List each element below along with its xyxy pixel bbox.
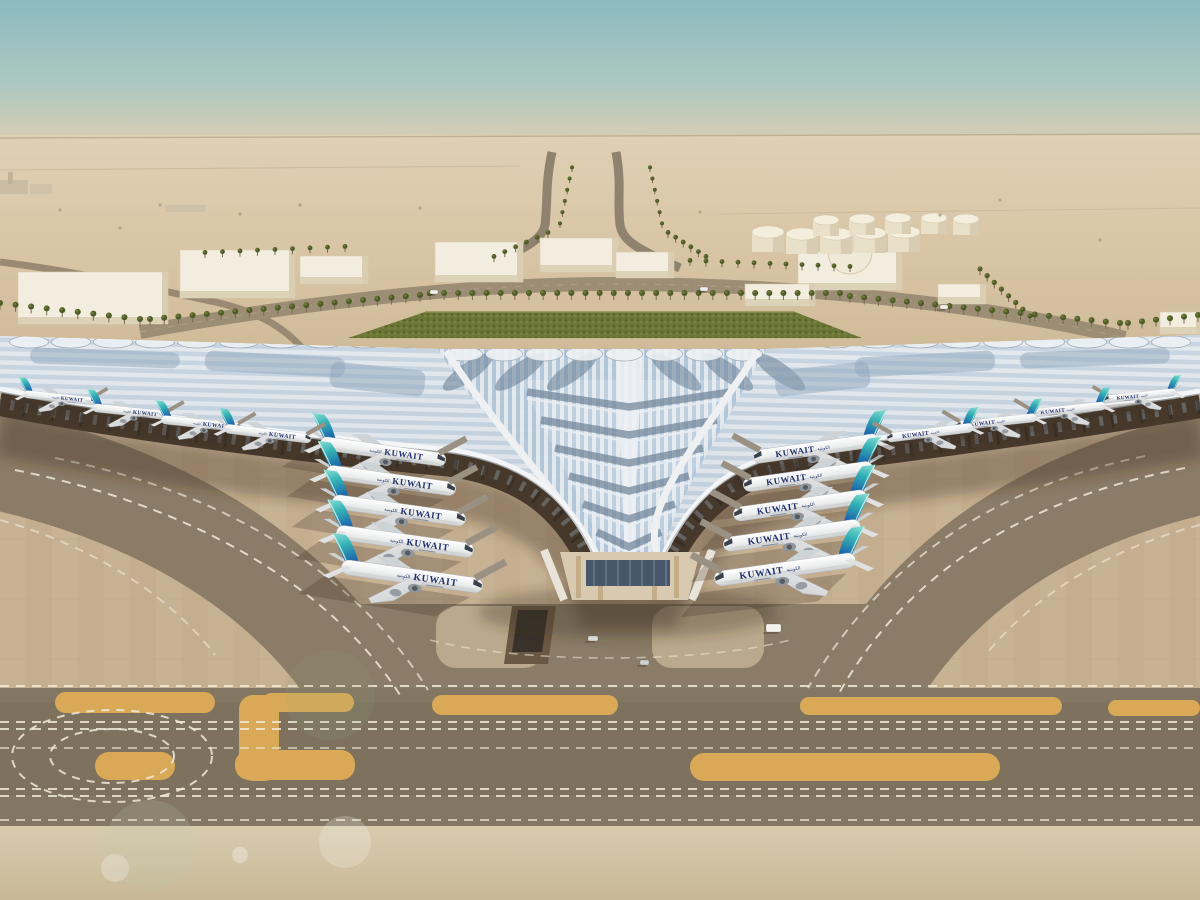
- palm-crown-highlight: [273, 247, 275, 249]
- palm-crown-highlight: [524, 240, 526, 242]
- palm-crown-highlight: [611, 291, 614, 294]
- palm-crown-highlight: [653, 188, 655, 190]
- palm-crown-highlight: [655, 199, 657, 201]
- vehicle-shadow: [937, 309, 945, 311]
- greenery-band: [348, 312, 862, 338]
- palm-crown-highlight: [1018, 311, 1021, 314]
- fuel-tank-top: [953, 214, 979, 224]
- building-front-shade: [435, 275, 523, 282]
- palm-crown-highlight: [203, 250, 205, 252]
- palm-crown-highlight: [1196, 313, 1199, 316]
- roof-scallop: [1152, 336, 1191, 348]
- palm-crown-highlight: [256, 248, 258, 250]
- roof-scallop: [566, 347, 603, 361]
- palm-crown-highlight: [162, 315, 165, 318]
- shrub: [698, 210, 701, 213]
- palm-crown-highlight: [668, 291, 671, 294]
- palm-crown-highlight: [75, 310, 78, 313]
- palm-crown-highlight: [876, 297, 879, 300]
- palm-crown-highlight: [308, 246, 310, 248]
- palm-crown-highlight: [961, 305, 964, 308]
- vehicle: [940, 305, 948, 309]
- palm-crown-highlight: [824, 291, 827, 294]
- palm-crown-highlight: [563, 199, 565, 201]
- shrub: [418, 206, 421, 209]
- palm-crown-highlight: [247, 308, 250, 311]
- palm-crown-highlight: [848, 294, 851, 297]
- palm-crown-highlight: [290, 304, 293, 307]
- palm-crown-highlight: [347, 299, 350, 302]
- paint-island: [432, 695, 618, 715]
- palm-crown-highlight: [688, 258, 690, 260]
- palm-crown-highlight: [558, 222, 560, 224]
- palm-crown-highlight: [704, 259, 706, 261]
- fuel-tank-top: [885, 213, 911, 223]
- palm-crown-highlight: [418, 293, 421, 296]
- building-side-shade: [362, 256, 368, 284]
- building-front-shade: [540, 265, 618, 272]
- roof-scallop: [526, 347, 563, 361]
- roof-scallop: [686, 347, 723, 361]
- palm-crown-highlight: [767, 291, 770, 294]
- palm-crown-highlight: [1004, 309, 1007, 312]
- palm-crown-highlight: [800, 263, 802, 265]
- pavilion-column: [598, 586, 603, 600]
- palm-crown-highlight: [1168, 316, 1171, 319]
- roof-scallop: [10, 336, 49, 348]
- palm-crown-highlight: [862, 295, 865, 298]
- palm-crown-highlight: [565, 188, 567, 190]
- building-front-shade: [616, 271, 674, 278]
- pavilion-column: [652, 586, 657, 600]
- palm-crown-highlight: [122, 315, 125, 318]
- shrub: [118, 226, 121, 229]
- palm-crown-highlight: [725, 291, 728, 294]
- palm-crown-highlight: [666, 230, 668, 232]
- palm-crown-highlight: [403, 294, 406, 297]
- palm-crown-highlight: [176, 314, 179, 317]
- vehicle-shadow: [427, 294, 435, 296]
- palm-crown-highlight: [1126, 321, 1129, 324]
- palm-crown-highlight: [736, 260, 738, 262]
- paint-island: [239, 695, 279, 781]
- palm-crown-highlight: [832, 264, 834, 266]
- palm-crown-highlight: [541, 291, 544, 294]
- palm-crown-highlight: [978, 267, 981, 270]
- palm-crown-highlight: [682, 291, 685, 294]
- paint-island: [690, 753, 1000, 781]
- shrub: [238, 212, 241, 215]
- palm-crown-highlight: [720, 260, 722, 262]
- vehicle: [700, 287, 708, 291]
- palm-crown-highlight: [326, 245, 328, 247]
- palm-crown-highlight: [597, 291, 600, 294]
- palm-crown-highlight: [514, 245, 516, 247]
- palm-crown-highlight: [985, 274, 988, 277]
- palm-crown-highlight: [148, 317, 151, 320]
- building-side-shade: [289, 250, 295, 298]
- pavilion-glazing: [586, 560, 670, 586]
- palm-crown-highlight: [583, 291, 586, 294]
- palm-crown-highlight: [492, 254, 494, 256]
- palm-crown-highlight: [1032, 312, 1035, 315]
- palm-crown-highlight: [1118, 321, 1121, 324]
- palm-crown-highlight: [343, 244, 345, 246]
- paint-island: [1108, 700, 1200, 716]
- palm-crown-highlight: [999, 287, 1002, 290]
- roof-scallop: [646, 347, 683, 361]
- palm-crown-highlight: [1028, 314, 1031, 317]
- palm-crown-highlight: [1075, 316, 1078, 319]
- building-front-shade: [180, 291, 295, 298]
- palm-crown-highlight: [456, 291, 459, 294]
- palm-crown-highlight: [484, 291, 487, 294]
- shrub: [58, 208, 61, 211]
- vehicle-shadow: [585, 641, 595, 643]
- palm-crown-highlight: [704, 254, 706, 256]
- palm-crown-highlight: [361, 298, 364, 301]
- palm-crown-highlight: [503, 250, 505, 252]
- palm-crown-highlight: [660, 222, 662, 224]
- building-front-shade: [745, 299, 815, 306]
- palm-crown-highlight: [205, 312, 208, 315]
- building-side-shade: [517, 242, 523, 282]
- fuel-tank-top: [921, 213, 947, 223]
- palm-crown-highlight: [60, 308, 63, 311]
- palm-crown-highlight: [91, 311, 94, 314]
- palm-crown-highlight: [276, 305, 279, 308]
- palm-crown-highlight: [753, 291, 756, 294]
- palm-crown-highlight: [905, 299, 908, 302]
- palm-crown-highlight: [739, 291, 742, 294]
- vehicle: [588, 636, 598, 641]
- palm-crown-highlight: [375, 296, 378, 299]
- building-front-shade: [1160, 327, 1200, 334]
- palm-crown-highlight: [1021, 307, 1024, 310]
- shrub: [998, 198, 1001, 201]
- paint-island: [95, 752, 175, 780]
- palm-crown-highlight: [681, 240, 683, 242]
- palm-crown-highlight: [291, 247, 293, 249]
- roof-scallop: [606, 347, 643, 361]
- palm-crown-highlight: [442, 291, 445, 294]
- vehicle: [430, 290, 438, 294]
- building-side-shade: [896, 252, 902, 290]
- palm-crown-highlight: [569, 291, 572, 294]
- palm-crown-highlight: [1140, 319, 1143, 322]
- palm-crown-highlight: [219, 310, 222, 313]
- building-front-shade: [300, 277, 368, 284]
- roof-scallop: [486, 347, 523, 361]
- palm-crown-highlight: [555, 291, 558, 294]
- roof-scallop: [1110, 336, 1149, 348]
- palm-crown-highlight: [1182, 314, 1185, 317]
- palm-crown-highlight: [784, 262, 786, 264]
- palm-crown-highlight: [838, 291, 841, 294]
- vehicle: [766, 624, 781, 632]
- palm-crown-highlight: [1061, 315, 1064, 318]
- shrub: [158, 203, 161, 206]
- palm-crown-highlight: [570, 166, 572, 168]
- vehicle: [640, 660, 649, 665]
- palm-crown-highlight: [752, 261, 754, 263]
- shrub: [298, 203, 301, 206]
- palm-crown-highlight: [138, 317, 141, 320]
- palm-crown-highlight: [561, 210, 563, 212]
- building-front-shade: [938, 297, 986, 304]
- palm-crown-highlight: [107, 313, 110, 316]
- palm-crown-highlight: [976, 306, 979, 309]
- palm-crown-highlight: [689, 245, 691, 247]
- palm-crown-highlight: [626, 291, 629, 294]
- vehicle-shadow: [763, 632, 778, 634]
- fuel-tank-top: [849, 214, 875, 224]
- palm-crown-highlight: [651, 177, 653, 179]
- palm-crown-highlight: [535, 235, 537, 237]
- palm-crown-highlight: [238, 249, 240, 251]
- palm-crown-highlight: [710, 291, 713, 294]
- palm-crown-highlight: [261, 307, 264, 310]
- palm-crown-highlight: [648, 166, 650, 168]
- palm-crown-highlight: [816, 263, 818, 265]
- palm-crown-highlight: [781, 291, 784, 294]
- palm-crown-highlight: [990, 308, 993, 311]
- palm-crown-highlight: [1047, 314, 1050, 317]
- palm-crown-highlight: [933, 302, 936, 305]
- palm-crown-highlight: [513, 291, 516, 294]
- palm-crown-highlight: [658, 210, 660, 212]
- scene-svg: KUWAIT الكويتية: [0, 0, 1200, 900]
- palm-crown-highlight: [233, 309, 236, 312]
- palm-crown-highlight: [1103, 319, 1106, 322]
- palm-crown-highlight: [498, 291, 501, 294]
- building-side-shade: [668, 252, 674, 278]
- palm-crown-highlight: [654, 291, 657, 294]
- building-side-shade: [980, 284, 986, 304]
- pavilion-column: [674, 556, 679, 598]
- pavilion-column: [576, 556, 581, 598]
- palm-crown-highlight: [640, 291, 643, 294]
- palm-crown-highlight: [809, 291, 812, 294]
- shrub: [1098, 238, 1101, 241]
- palm-crown-highlight: [795, 291, 798, 294]
- palm-crown-highlight: [696, 250, 698, 252]
- palm-crown-highlight: [546, 230, 548, 232]
- fuel-tank-top: [813, 215, 839, 225]
- palm-crown-highlight: [1014, 300, 1017, 303]
- palm-crown-highlight: [1089, 318, 1092, 321]
- palm-crown-highlight: [568, 177, 570, 179]
- palm-crown-highlight: [674, 235, 676, 237]
- palm-crown-highlight: [470, 291, 473, 294]
- palm-crown-highlight: [389, 295, 392, 298]
- palm-crown-highlight: [44, 306, 47, 309]
- palm-crown-highlight: [221, 250, 223, 252]
- palm-crown-highlight: [768, 261, 770, 263]
- palm-crown-highlight: [304, 303, 307, 306]
- palm-crown-highlight: [318, 302, 321, 305]
- palm-crown-highlight: [890, 298, 893, 301]
- airport-rendering: KUWAIT الكويتية: [0, 0, 1200, 900]
- shrub: [938, 213, 941, 216]
- palm-crown-highlight: [13, 302, 16, 305]
- palm-crown-highlight: [332, 300, 335, 303]
- building: [180, 250, 295, 298]
- palm-crown-highlight: [848, 264, 850, 266]
- vehicle-shadow: [637, 665, 646, 667]
- palm-crown-highlight: [29, 304, 32, 307]
- fuel-tank-top: [752, 226, 784, 238]
- palm-crown-highlight: [190, 313, 193, 316]
- palm-crown-highlight: [919, 301, 922, 304]
- vehicle-shadow: [697, 291, 705, 293]
- palm-crown-highlight: [992, 280, 995, 283]
- palm-crown-highlight: [1154, 318, 1157, 321]
- palm-crown-highlight: [1006, 294, 1009, 297]
- palm-crown-highlight: [527, 291, 530, 294]
- paint-island: [55, 692, 215, 713]
- paint-island: [800, 697, 1062, 715]
